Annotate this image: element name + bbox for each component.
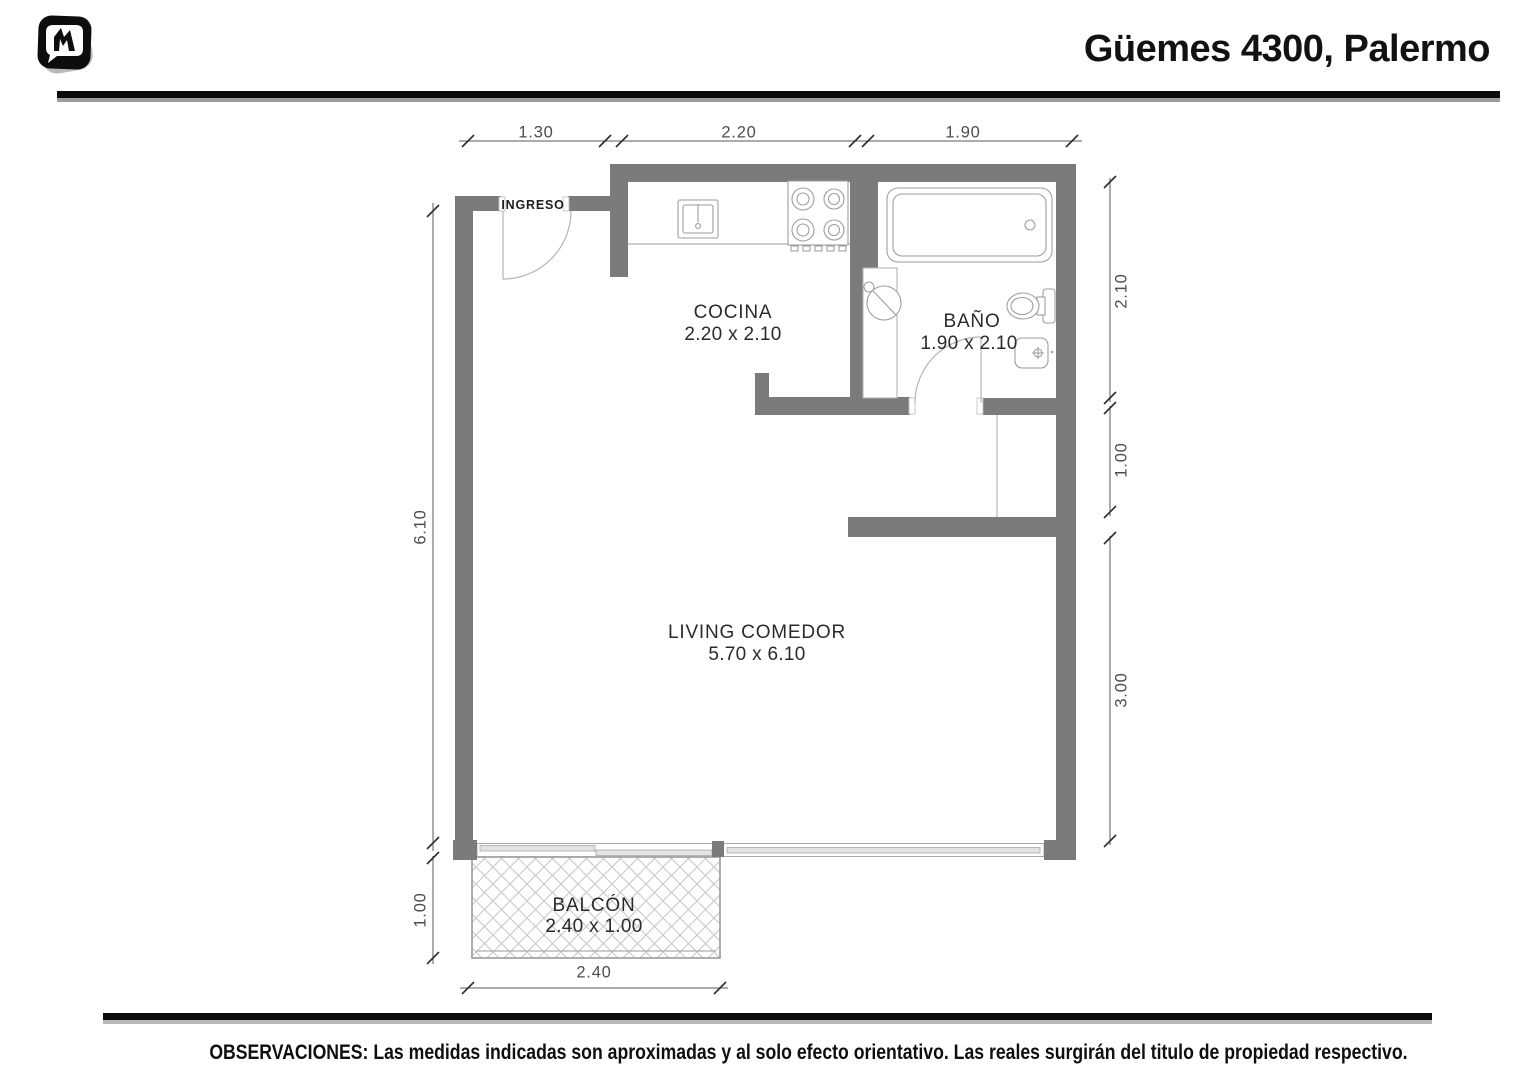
bath-jamb-right xyxy=(977,398,983,414)
living-window-glazing xyxy=(727,848,1040,854)
wall-corner-bottom-right xyxy=(1044,840,1076,860)
floor-plan xyxy=(0,0,1532,1079)
wall-left xyxy=(455,196,473,843)
balcony-door-panel-left xyxy=(480,846,595,852)
wall-kitchen-stub xyxy=(755,373,769,399)
dim-value-right-1: 2.10 xyxy=(1113,273,1132,308)
wall-window-pier xyxy=(712,841,724,857)
room-size-balcon: 2.40 x 1.00 xyxy=(545,916,642,938)
toilet xyxy=(1007,289,1055,323)
room-size-living: 5.70 x 6.10 xyxy=(708,644,805,666)
stove-knobs xyxy=(791,246,846,251)
dim-bottom-2.40 xyxy=(460,982,728,994)
observations-text: OBSERVACIONES: Las medidas indicadas son… xyxy=(209,1041,1325,1065)
floorplan-page: { "header": { "title": "Güemes 4300, Pal… xyxy=(0,0,1532,1079)
entry-door-arc xyxy=(503,211,571,279)
dim-value-left-2: 1.00 xyxy=(412,892,431,927)
balcony-door-panel-right xyxy=(596,850,712,856)
dim-value-top-1: 1.30 xyxy=(518,124,553,143)
bidet xyxy=(1015,338,1053,368)
room-label-balcon: BALCÓN xyxy=(553,895,636,917)
bath-jamb-left xyxy=(909,398,915,414)
dim-value-left-1: 6.10 xyxy=(412,509,431,544)
wall-hall-bottom xyxy=(848,517,1056,537)
bathtub xyxy=(887,188,1052,262)
room-size-cocina: 2.20 x 2.10 xyxy=(684,324,781,346)
wall-bath-bottom-right xyxy=(983,398,1056,415)
dim-value-right-3: 3.00 xyxy=(1113,672,1132,707)
dim-value-bottom-1: 2.40 xyxy=(576,964,611,983)
room-label-cocina: COCINA xyxy=(694,302,773,324)
dim-value-right-2: 1.00 xyxy=(1113,442,1132,477)
sink-drain xyxy=(696,224,701,229)
washbasin xyxy=(863,268,901,398)
room-label-bano: BAÑO xyxy=(943,311,1000,333)
toilet-bowl-inner xyxy=(1011,298,1033,315)
footer-divider-bar xyxy=(103,1013,1432,1020)
stove xyxy=(788,181,848,251)
bathtub-inner xyxy=(893,194,1046,256)
wall-corner-bottom-left xyxy=(453,840,477,860)
room-label-ingreso: INGRESO xyxy=(501,198,564,212)
kitchen-fixtures xyxy=(628,181,850,251)
wall-kitchen-bath-divider-lower xyxy=(850,268,863,415)
bidet-dot xyxy=(1051,351,1054,354)
dim-value-top-2: 2.20 xyxy=(721,124,756,143)
wall-kitchen-bath-divider-upper xyxy=(850,180,878,268)
dim-value-top-3: 1.90 xyxy=(945,124,980,143)
kitchen-sink xyxy=(678,200,718,238)
entry-door-swing xyxy=(503,211,571,279)
bathtub-drain xyxy=(1025,220,1035,230)
windows xyxy=(477,844,1044,857)
wall-right xyxy=(1056,164,1076,858)
footer-divider-shadow xyxy=(103,1020,1432,1024)
wall-top xyxy=(610,164,1075,182)
room-size-bano: 1.90 x 2.10 xyxy=(920,333,1017,355)
walls xyxy=(453,164,1076,860)
wall-entry-stub-left xyxy=(455,196,501,211)
room-label-living: LIVING COMEDOR xyxy=(668,622,846,644)
basin-tap-knob xyxy=(864,282,874,292)
wall-kitchen-left xyxy=(610,180,628,277)
wall-kitchen-bottom xyxy=(755,397,910,415)
